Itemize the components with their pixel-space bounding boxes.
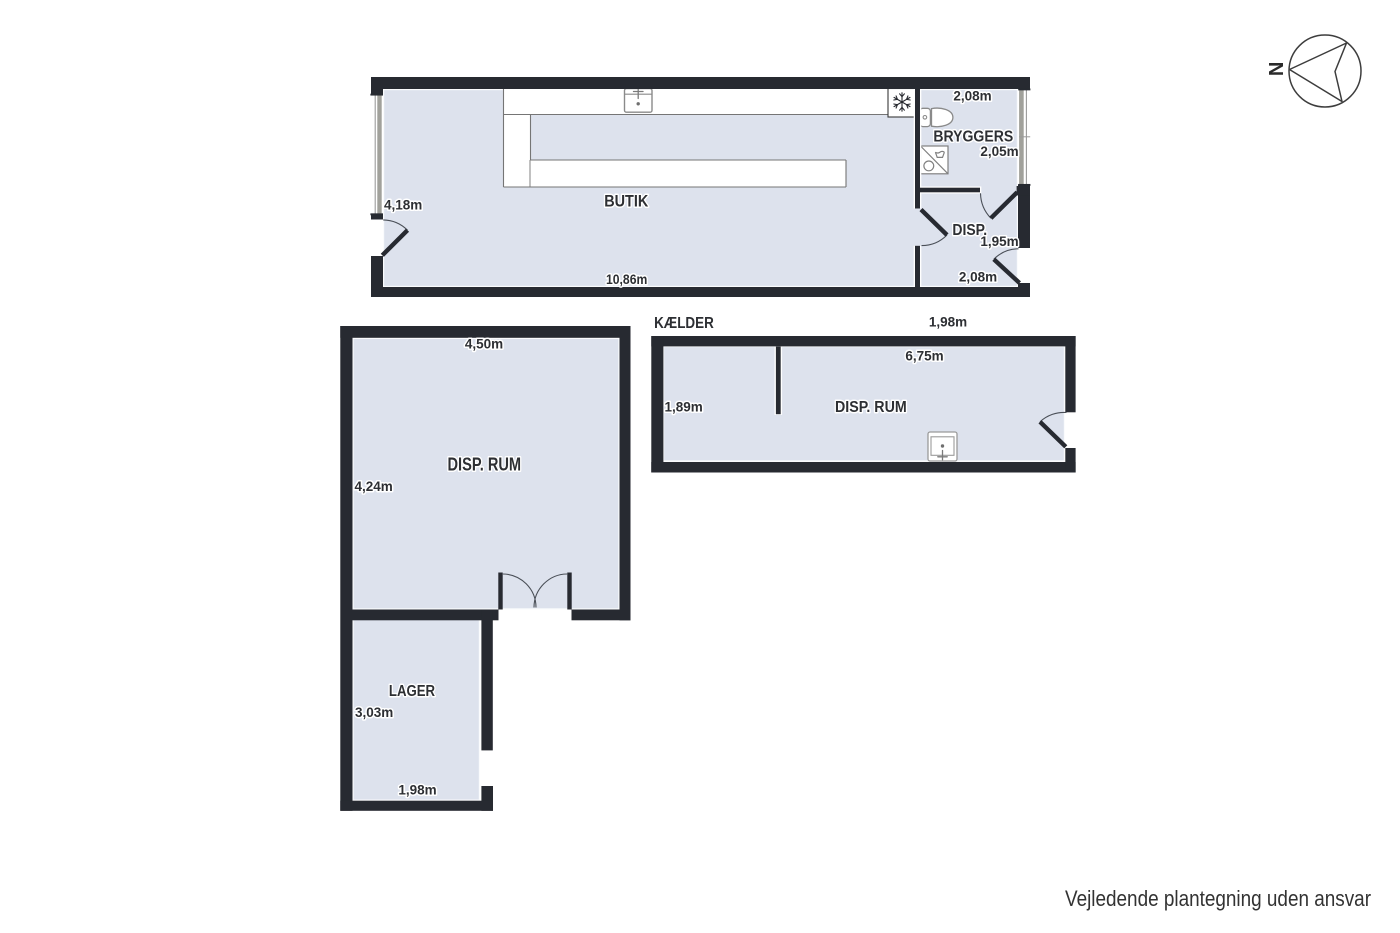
svg-text:1,98m: 1,98m [398,782,436,797]
svg-text:LAGER: LAGER [389,683,436,700]
svg-text:2,05m: 2,05m [980,144,1018,159]
svg-text:BUTIK: BUTIK [604,192,648,210]
svg-text:4,18m: 4,18m [384,198,422,213]
svg-text:Vejledende plantegning uden an: Vejledende plantegning uden ansvar [1065,886,1371,911]
svg-text:2,08m: 2,08m [953,89,991,104]
svg-text:4,24m: 4,24m [355,479,393,494]
svg-text:N: N [1266,62,1288,76]
svg-text:3,03m: 3,03m [355,705,393,720]
svg-text:DISP. RUM: DISP. RUM [448,455,522,475]
svg-text:KÆLDER: KÆLDER [654,315,714,332]
svg-text:1,89m: 1,89m [665,400,703,415]
svg-text:BRYGGERS: BRYGGERS [933,128,1013,145]
svg-text:DISP. RUM: DISP. RUM [835,399,907,416]
svg-text:1,98m: 1,98m [929,315,967,330]
svg-text:4,50m: 4,50m [465,337,503,352]
svg-text:1,95m: 1,95m [980,234,1018,249]
svg-text:10,86m: 10,86m [606,272,647,287]
svg-text:2,08m: 2,08m [959,270,997,285]
svg-text:6,75m: 6,75m [905,349,943,364]
